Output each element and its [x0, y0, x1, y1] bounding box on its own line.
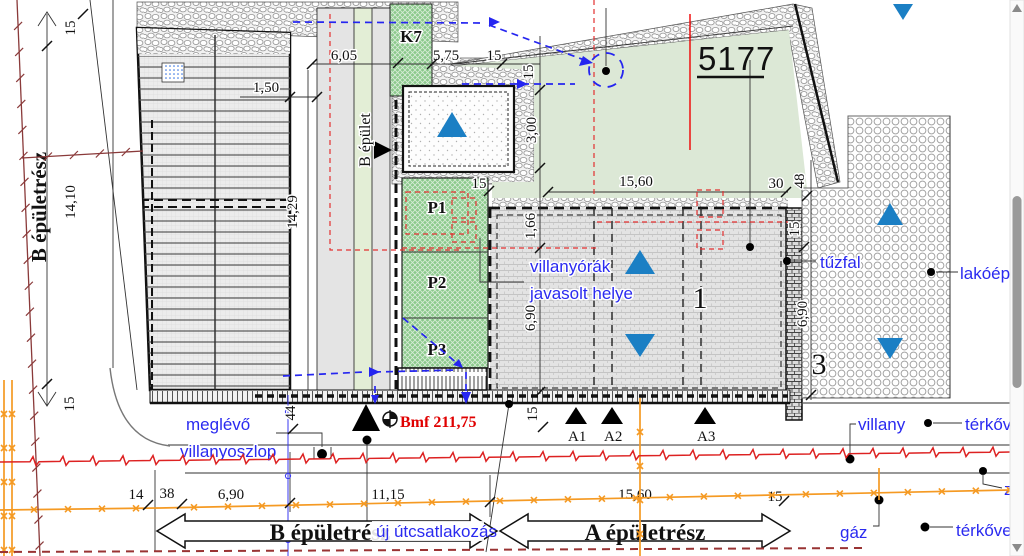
- firewall-label: tűzfal: [820, 253, 861, 272]
- meters-label-2: javasolt helye: [529, 284, 633, 303]
- dim-14-29: 14,29: [285, 195, 301, 229]
- a2-label: A2: [604, 429, 622, 445]
- p3-label: P3: [428, 340, 447, 359]
- dim-5-75: 5,75: [433, 48, 459, 64]
- dim-6-90-mid: 6,90: [523, 305, 539, 331]
- dim-15-60-bottom: 15,60: [618, 487, 652, 503]
- dim-15-k7: 15: [487, 48, 502, 64]
- p-parking-strip: P1 P2 P3: [402, 178, 488, 368]
- dim-14-10: 14,10: [63, 185, 79, 219]
- electric-line: [0, 447, 1010, 466]
- paving-label-bottom: térkőve: [956, 521, 1012, 540]
- white-outbuilding: [403, 86, 514, 172]
- k7-label: K7: [400, 27, 422, 46]
- dim-14: 14: [129, 487, 145, 503]
- dim-1-66: 1,66: [523, 212, 539, 239]
- dim-15-p1: 15: [472, 176, 487, 192]
- dim-6-90-wall: 6,90: [795, 301, 811, 327]
- dim-15-bottom-left: 15: [62, 397, 78, 412]
- dim-tick: [78, 9, 88, 19]
- meters-label-1: villanyórák: [530, 257, 611, 276]
- scrollbar-thumb[interactable]: [1013, 196, 1022, 388]
- survey-triangle-icon: [694, 407, 716, 424]
- dim-15-top-left: 15: [63, 21, 79, 36]
- parcel-number: 5177: [698, 40, 775, 77]
- a-part-label: A épületrész: [585, 520, 706, 545]
- existing-pole-label-1: meglévő: [186, 415, 250, 434]
- sidewalk-band: [150, 390, 790, 403]
- boundary-dashed-line: [0, 548, 862, 552]
- dim-15-wall: 15: [787, 222, 803, 237]
- survey-triangle-icon: [601, 407, 623, 424]
- dim-15-60-top: 15,60: [619, 174, 653, 190]
- benchmark-elevation-label: Bmf 211,75: [400, 414, 476, 431]
- dim-48: 48: [792, 174, 808, 189]
- new-road-label: új útcsatlakozás: [376, 522, 497, 541]
- survey-triangle-icon: [352, 404, 380, 431]
- dim-6-90-bottom: 6,90: [218, 487, 244, 503]
- dim-tick: [288, 424, 298, 434]
- b-part-left-label: B épületrész: [27, 152, 51, 262]
- dim-30: 30: [769, 176, 784, 192]
- a3-label: A3: [697, 429, 715, 445]
- p2-label: P2: [428, 273, 447, 292]
- survey-triangle-icon: [565, 407, 587, 424]
- dim-15-yard: 15: [521, 65, 537, 80]
- existing-pole-label-2: villanyoszlop: [180, 442, 276, 461]
- dim-6-05: 6,05: [331, 48, 357, 64]
- site-plan-canvas[interactable]: K7 P1 P2 P3 1 3: [0, 0, 1024, 556]
- gas-label: gáz: [840, 523, 867, 542]
- building-b-label: B épület: [357, 113, 374, 167]
- dim-38: 38: [160, 486, 175, 502]
- parcel-number-group: 5177: [697, 40, 775, 77]
- a1-label: A1: [568, 429, 586, 445]
- extent-arrows: B épületrész A épületrész új útcsatlakoz…: [157, 514, 790, 548]
- dim-15-road: 15: [525, 407, 541, 422]
- scrollbar: [1010, 0, 1024, 556]
- dim-1-50: 1,50: [253, 80, 279, 96]
- site-plan-drawing: K7 P1 P2 P3 1 3: [0, 0, 1024, 556]
- k7-strip: K7: [390, 4, 432, 96]
- dim-44: 44: [283, 405, 299, 421]
- fence-line: [17, 0, 40, 556]
- unit-number-1: 1: [693, 282, 708, 315]
- dim-tick: [538, 422, 548, 432]
- unit-number-3: 3: [812, 348, 827, 381]
- triangle-down-icon: [893, 4, 913, 20]
- p1-label: P1: [428, 198, 447, 217]
- dim-3-00: 3,00: [524, 117, 540, 143]
- electric-label: villany: [858, 415, 906, 434]
